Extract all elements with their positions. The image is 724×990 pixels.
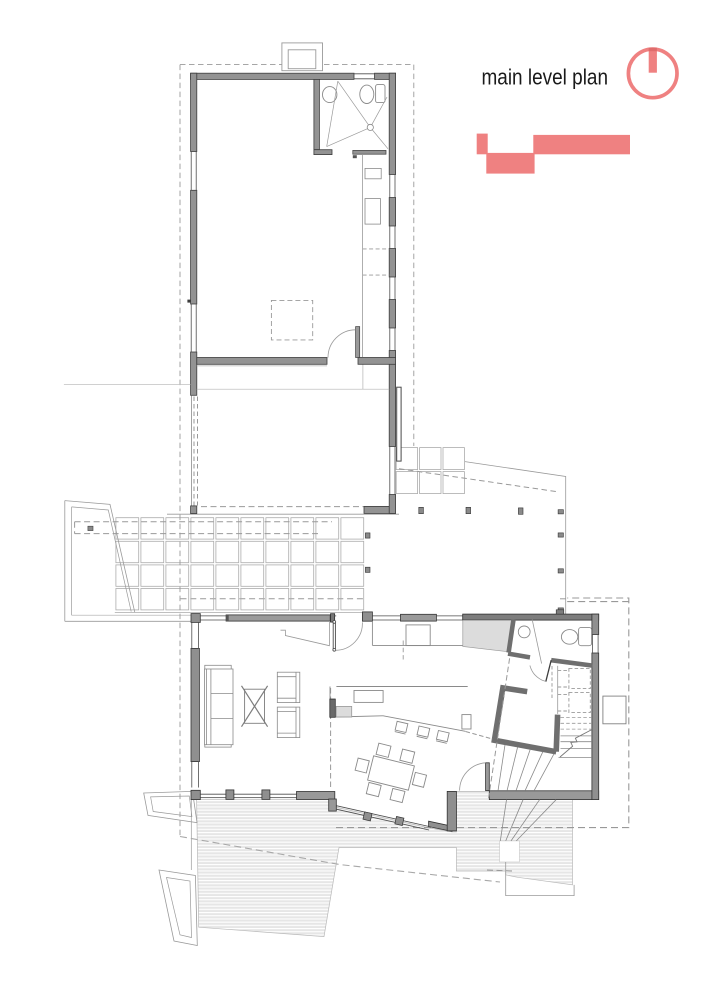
svg-text:main level plan: main level plan bbox=[482, 64, 609, 89]
